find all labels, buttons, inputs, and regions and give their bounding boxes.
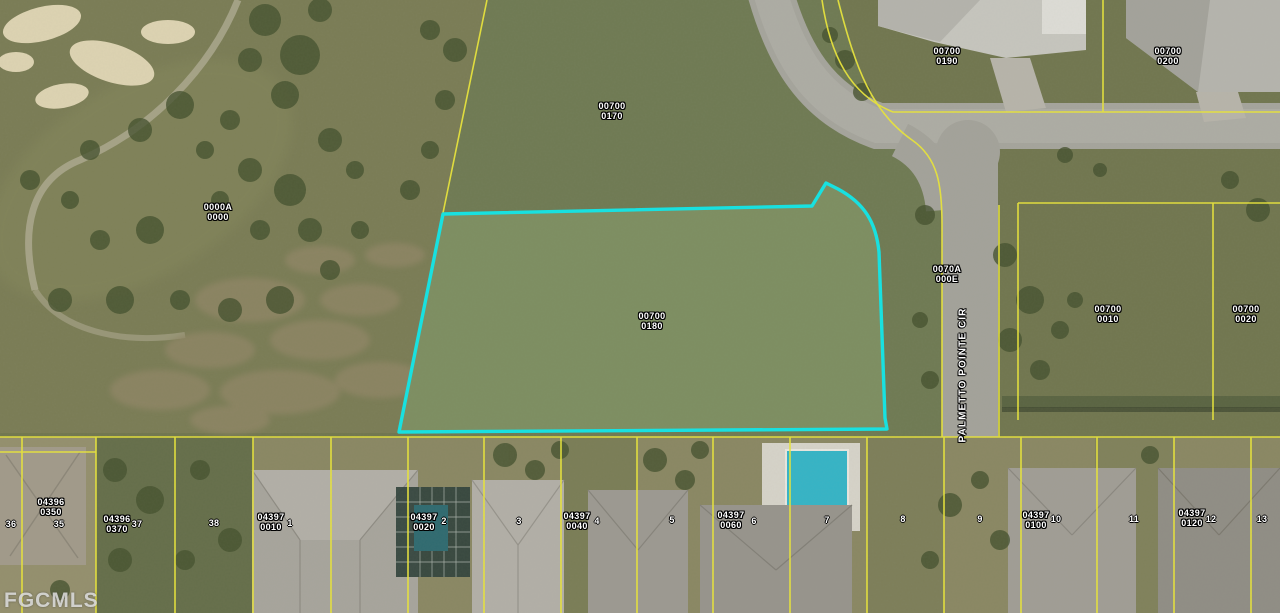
lot-number-13: 13 xyxy=(1257,514,1268,524)
street-name-label: PALMETTO POINTE CIR xyxy=(958,308,969,443)
parcel-label-0000A-0000: 0000A 0000 xyxy=(204,202,233,222)
lot-number-11: 11 xyxy=(1129,514,1139,524)
lot-number-9: 9 xyxy=(977,514,982,524)
parcel-label-04396-0350: 04396 0350 xyxy=(37,497,64,517)
lot-number-8: 8 xyxy=(900,514,905,524)
mls-watermark: FGCMLS xyxy=(4,589,99,613)
label-layer: PALMETTO POINTE CIR FGCMLS 00700 0170007… xyxy=(0,0,1280,613)
parcel-label-00700-0010: 00700 0010 xyxy=(1094,304,1121,324)
parcel-label-00700-0020: 00700 0020 xyxy=(1232,304,1259,324)
map-viewport: PALMETTO POINTE CIR FGCMLS 00700 0170007… xyxy=(0,0,1280,613)
parcel-label-0070A-000E: 0070A 000E xyxy=(933,264,962,284)
parcel-label-04397-0100: 04397 0100 xyxy=(1022,510,1049,530)
lot-number-10: 10 xyxy=(1051,514,1062,524)
lot-number-5: 5 xyxy=(669,515,674,525)
lot-number-2: 2 xyxy=(441,516,446,526)
lot-number-7: 7 xyxy=(824,515,829,525)
parcel-label-04397-0120: 04397 0120 xyxy=(1178,508,1205,528)
parcel-label-00700-0170: 00700 0170 xyxy=(598,101,625,121)
parcel-label-04397-0020: 04397 0020 xyxy=(410,512,437,532)
parcel-label-00700-0190: 00700 0190 xyxy=(933,46,960,66)
lot-number-1: 1 xyxy=(287,518,292,528)
lot-number-35: 35 xyxy=(54,519,65,529)
lot-number-12: 12 xyxy=(1206,514,1217,524)
parcel-label-00700-0200: 00700 0200 xyxy=(1154,46,1181,66)
lot-number-36: 36 xyxy=(6,519,17,529)
parcel-label-00700-0180-subject: 00700 0180 xyxy=(638,311,665,331)
lot-number-37: 37 xyxy=(132,519,143,529)
lot-number-6: 6 xyxy=(751,516,756,526)
parcel-label-04397-0060: 04397 0060 xyxy=(717,510,744,530)
parcel-label-04396-0370: 04396 0370 xyxy=(103,514,130,534)
lot-number-3: 3 xyxy=(516,516,521,526)
lot-number-4: 4 xyxy=(594,516,599,526)
parcel-label-04397-0010: 04397 0010 xyxy=(257,512,284,532)
lot-number-38: 38 xyxy=(209,518,220,528)
parcel-label-04397-0040: 04397 0040 xyxy=(563,511,590,531)
